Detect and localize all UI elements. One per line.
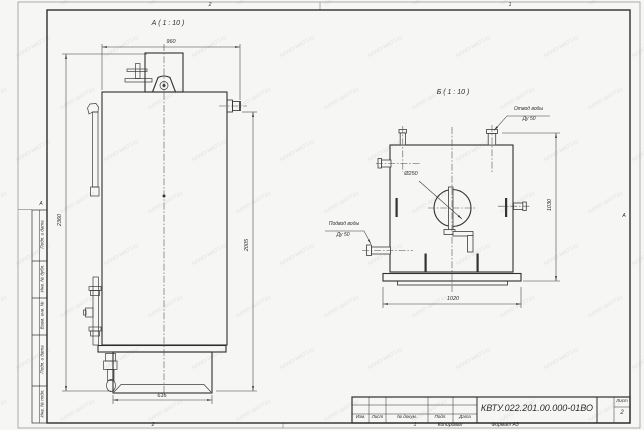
title-block-doc-number: КВТУ.022.201.00.000-01ВО bbox=[477, 404, 597, 414]
callout-water-inlet-line2: Ду 50 bbox=[313, 233, 373, 239]
dim-1020: 1020 bbox=[433, 296, 473, 302]
title-block-sheet-number: 2 bbox=[614, 410, 630, 417]
title-block-col-list: Лист bbox=[369, 415, 386, 420]
dim-diameter-250: Ø250 bbox=[391, 171, 431, 177]
footer-format-label: Формат А3 bbox=[475, 423, 535, 429]
zone-mark-top-left: 2 bbox=[200, 3, 220, 9]
view-b-centerlines bbox=[362, 125, 530, 292]
view-a-center-dot bbox=[163, 195, 166, 198]
inner-frame bbox=[47, 10, 630, 423]
title-block-col-data: Дата bbox=[453, 415, 477, 420]
title-block-col-ndoc: № докум. bbox=[386, 415, 428, 420]
dim-615: 615 bbox=[142, 393, 182, 399]
dim-960: 960 bbox=[151, 39, 191, 45]
dim-1030: 1030 bbox=[547, 185, 553, 225]
view-a-outline bbox=[98, 53, 241, 393]
callout-water-outlet-line2: Ду 50 bbox=[499, 117, 559, 123]
title-block-sheet-label: Лист bbox=[614, 399, 630, 404]
view-a-details bbox=[84, 64, 212, 393]
view-a-dimensions bbox=[62, 44, 257, 404]
view-a-title: А ( 1 : 10 ) bbox=[133, 20, 203, 28]
dim-2005: 2005 bbox=[244, 225, 250, 265]
view-a-centerlines bbox=[164, 44, 247, 397]
zone-mark-bottom-left: 2 bbox=[143, 423, 163, 429]
zone-mark-top-right: 1 bbox=[500, 3, 520, 9]
side-column-label-3: Взам. инв. № bbox=[41, 291, 46, 339]
zone-mark-right: А bbox=[619, 214, 629, 220]
side-column-label-1: Подп. и дата bbox=[41, 210, 46, 258]
title-block-col-podp: Подп. bbox=[428, 415, 453, 420]
callout-water-inlet-line1: Подвод воды bbox=[314, 222, 374, 228]
dim-2360: 2360 bbox=[57, 200, 63, 240]
title-block-col-izm: Изм. bbox=[352, 415, 369, 420]
drawing-sheet: NANO-WATT.kzNANO-WATT.kzNANO-WATT.kzNANO… bbox=[0, 0, 644, 430]
view-b-title: Б ( 1 : 10 ) bbox=[418, 89, 488, 97]
zone-mark-left: А bbox=[36, 202, 46, 208]
footer-copied-label: Копировал bbox=[420, 423, 480, 429]
side-column-label-5: Инв. № подл. bbox=[41, 379, 46, 427]
callout-water-outlet-line1: Отвод воды bbox=[498, 107, 559, 113]
side-column-label-4: Подп. и дата bbox=[41, 335, 46, 383]
